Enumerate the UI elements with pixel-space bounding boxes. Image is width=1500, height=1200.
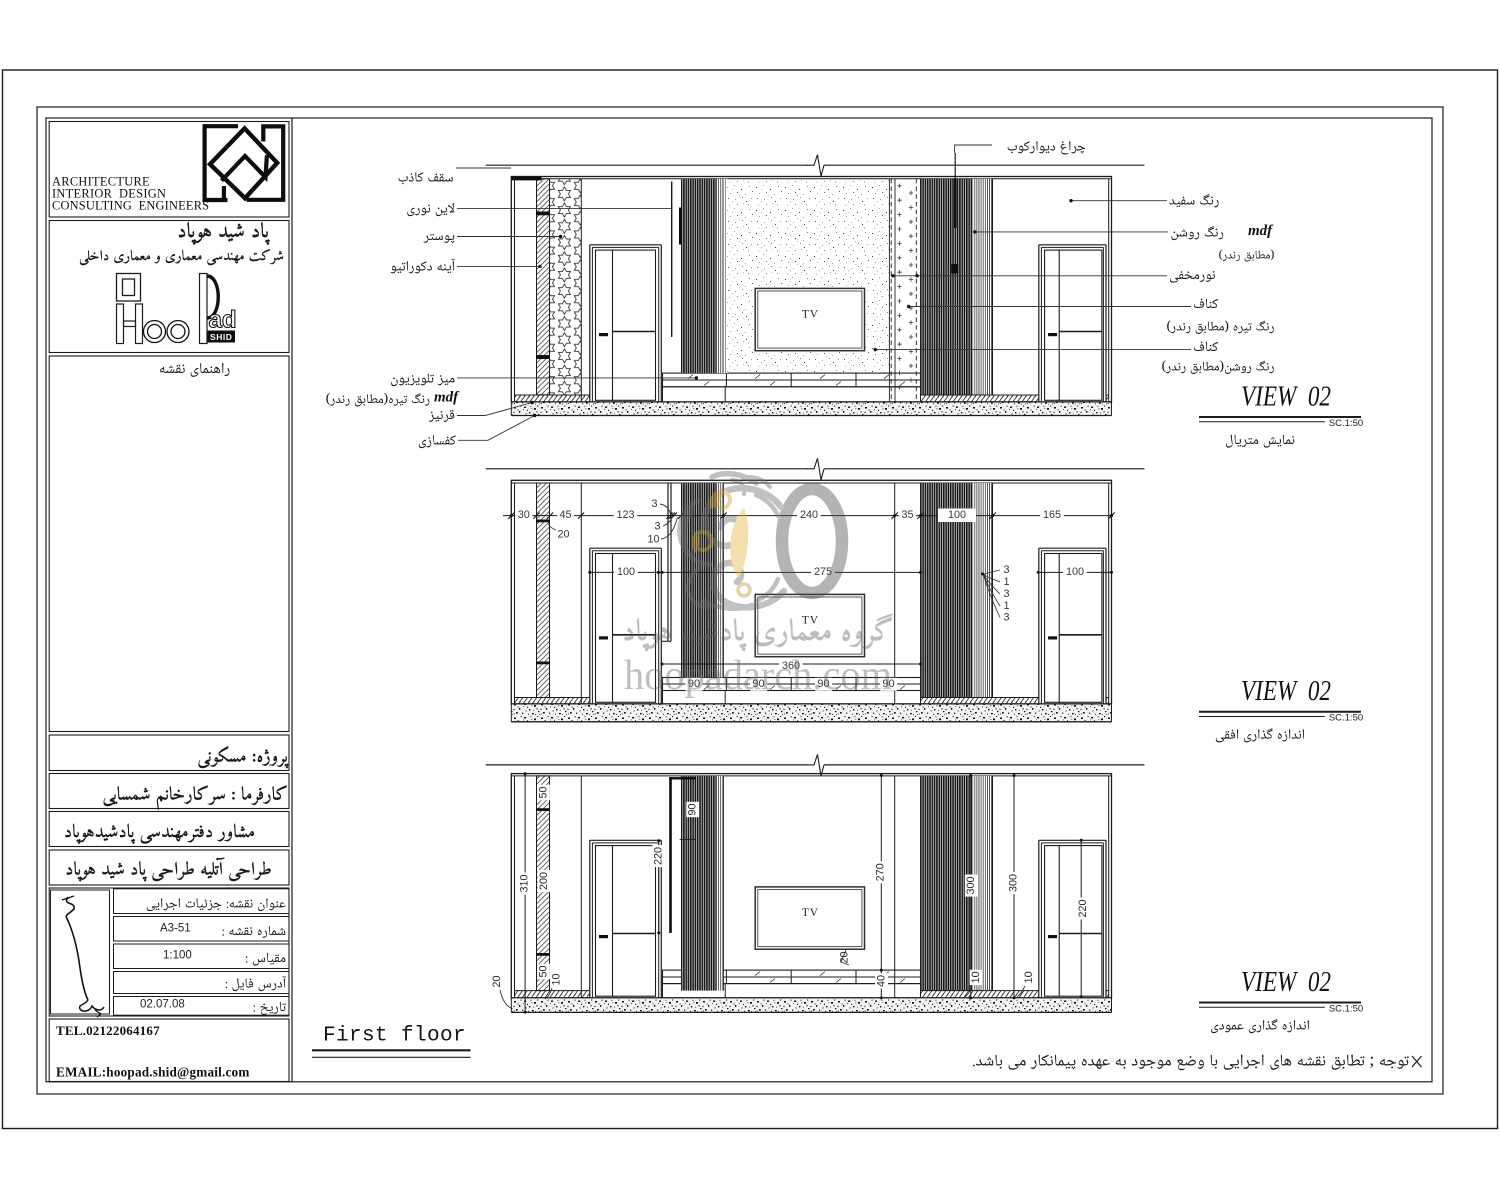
svg-text:100: 100: [1066, 566, 1084, 578]
svg-text:TV: TV: [802, 907, 819, 919]
svg-text:10: 10: [647, 533, 659, 545]
svg-text:1: 1: [1003, 576, 1009, 588]
svg-text:SHID: SHID: [210, 332, 232, 342]
svg-text:300: 300: [1007, 874, 1019, 892]
svg-text:3: 3: [654, 520, 660, 532]
svg-text:10: 10: [1023, 971, 1035, 983]
svg-text:50: 50: [537, 965, 549, 977]
svg-text:165: 165: [1043, 509, 1061, 521]
svg-text:CONSULTING ENGINEERS: CONSULTING ENGINEERS: [52, 199, 209, 213]
svg-text:300: 300: [965, 876, 977, 894]
svg-text:100: 100: [617, 566, 635, 578]
svg-text:10: 10: [970, 971, 982, 983]
svg-text:ad: ad: [209, 307, 237, 334]
svg-text:hoopadarch.com: hoopadarch.com: [624, 653, 892, 699]
svg-text:220: 220: [1077, 899, 1089, 917]
svg-text:VIEW 02: VIEW 02: [1241, 382, 1331, 413]
svg-text:270: 270: [874, 863, 886, 881]
svg-text:45: 45: [559, 509, 571, 521]
svg-text:mdf: mdf: [1248, 223, 1274, 239]
svg-text:3: 3: [1003, 588, 1009, 600]
svg-text:A3-51: A3-51: [160, 923, 191, 935]
svg-text:240: 240: [800, 509, 818, 521]
svg-text:3: 3: [651, 498, 657, 510]
svg-text:TEL.02122064167: TEL.02122064167: [56, 1023, 160, 1038]
svg-text:mdf: mdf: [434, 390, 460, 406]
svg-text:10: 10: [551, 973, 563, 985]
svg-text:SC.1:50: SC.1:50: [1329, 1004, 1363, 1015]
svg-text:TV: TV: [802, 308, 819, 320]
svg-text:90: 90: [687, 803, 699, 815]
svg-text:1:100: 1:100: [163, 950, 192, 962]
svg-text:First floor: First floor: [323, 1025, 466, 1048]
svg-text:1: 1: [1003, 600, 1009, 612]
svg-text:20: 20: [557, 528, 569, 540]
svg-text:EMAIL:hoopad.shid@gmail.com: EMAIL:hoopad.shid@gmail.com: [56, 1065, 250, 1080]
svg-text:3: 3: [1003, 564, 1009, 576]
svg-text:30: 30: [518, 509, 530, 521]
svg-text:SC.1:50: SC.1:50: [1329, 418, 1363, 429]
svg-text:40: 40: [875, 975, 887, 987]
svg-text:220: 220: [653, 847, 665, 865]
svg-text:SC.1:50: SC.1:50: [1329, 713, 1363, 724]
svg-text:50: 50: [537, 786, 549, 798]
svg-text:02.07.08: 02.07.08: [140, 999, 185, 1011]
svg-text:20: 20: [491, 975, 503, 987]
svg-text:VIEW 02: VIEW 02: [1241, 967, 1331, 998]
svg-text:35: 35: [901, 509, 913, 521]
svg-text:100: 100: [948, 509, 966, 521]
svg-text:123: 123: [616, 509, 634, 521]
svg-text:VIEW 02: VIEW 02: [1241, 676, 1331, 707]
svg-text:TV: TV: [802, 614, 819, 626]
svg-text:200: 200: [538, 872, 550, 890]
svg-text:3: 3: [1003, 611, 1009, 623]
svg-text:310: 310: [518, 874, 530, 892]
